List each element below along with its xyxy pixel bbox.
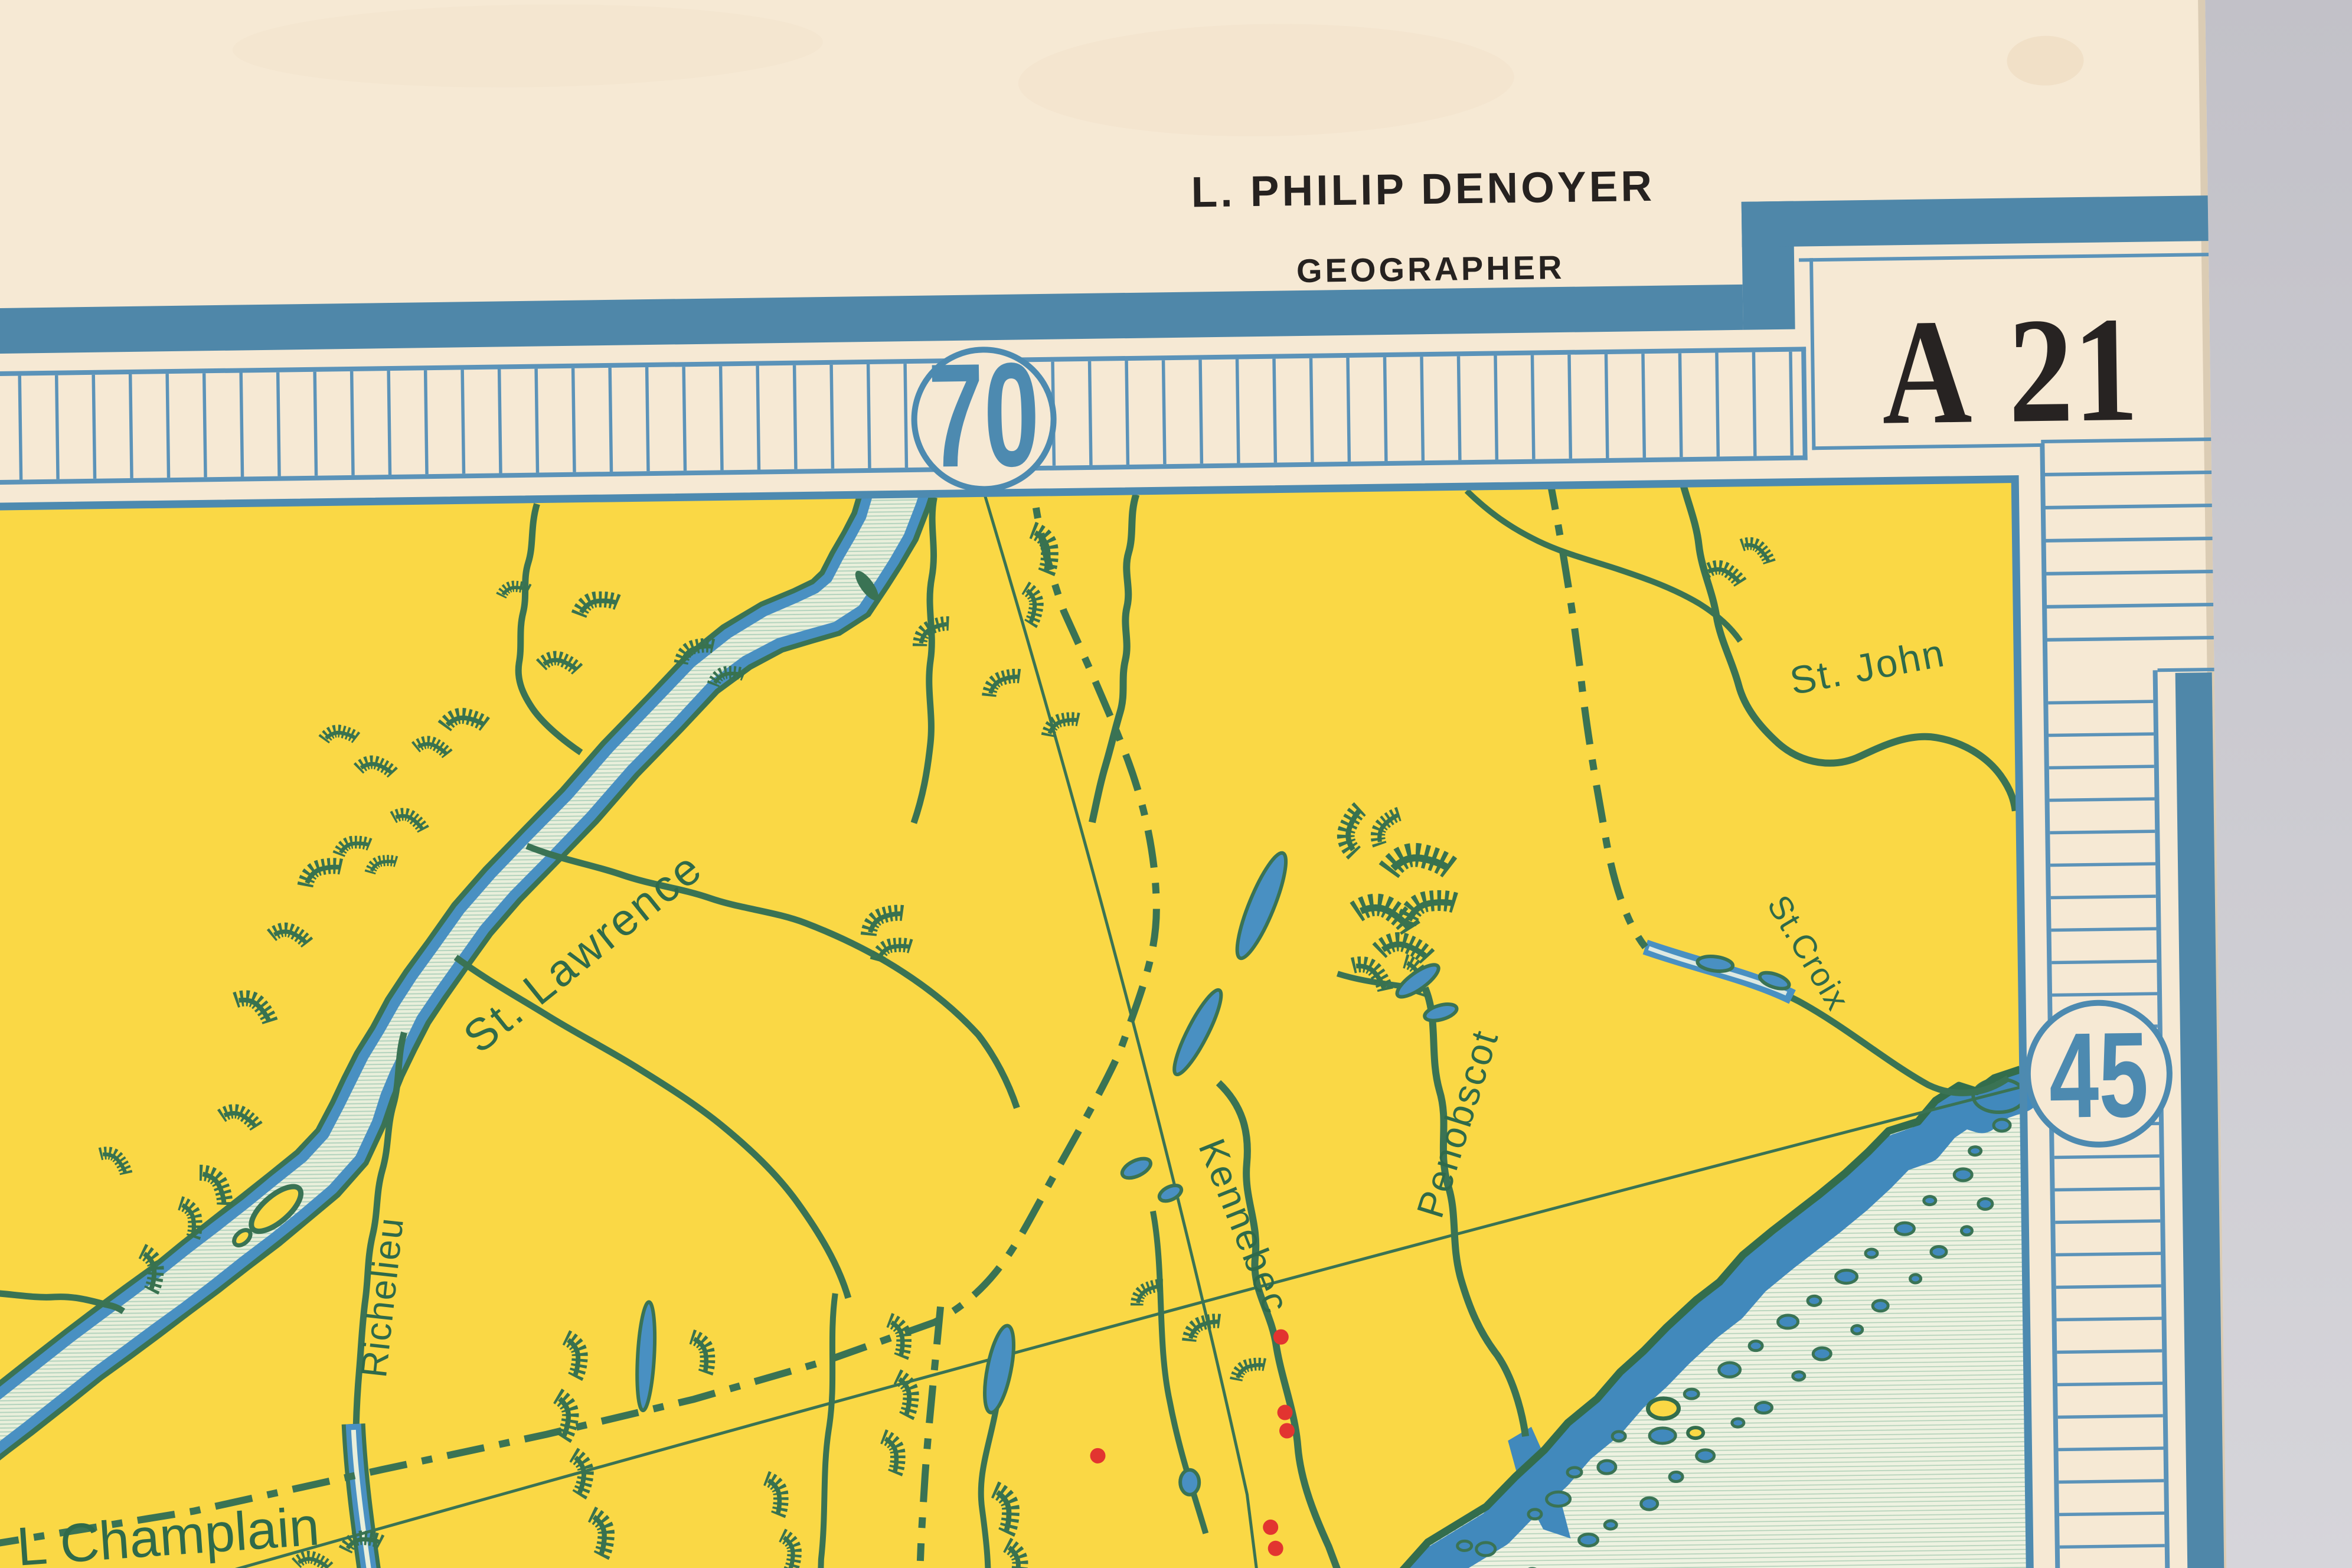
svg-text:21: 21 <box>2007 286 2139 455</box>
svg-text:A: A <box>1881 289 1973 456</box>
svg-text:L. PHILIP DENOYER: L. PHILIP DENOYER <box>1191 162 1655 217</box>
svg-text:GEOGRAPHER: GEOGRAPHER <box>1296 249 1565 289</box>
svg-text:70: 70 <box>927 332 1041 498</box>
svg-text:45: 45 <box>2048 1007 2149 1144</box>
